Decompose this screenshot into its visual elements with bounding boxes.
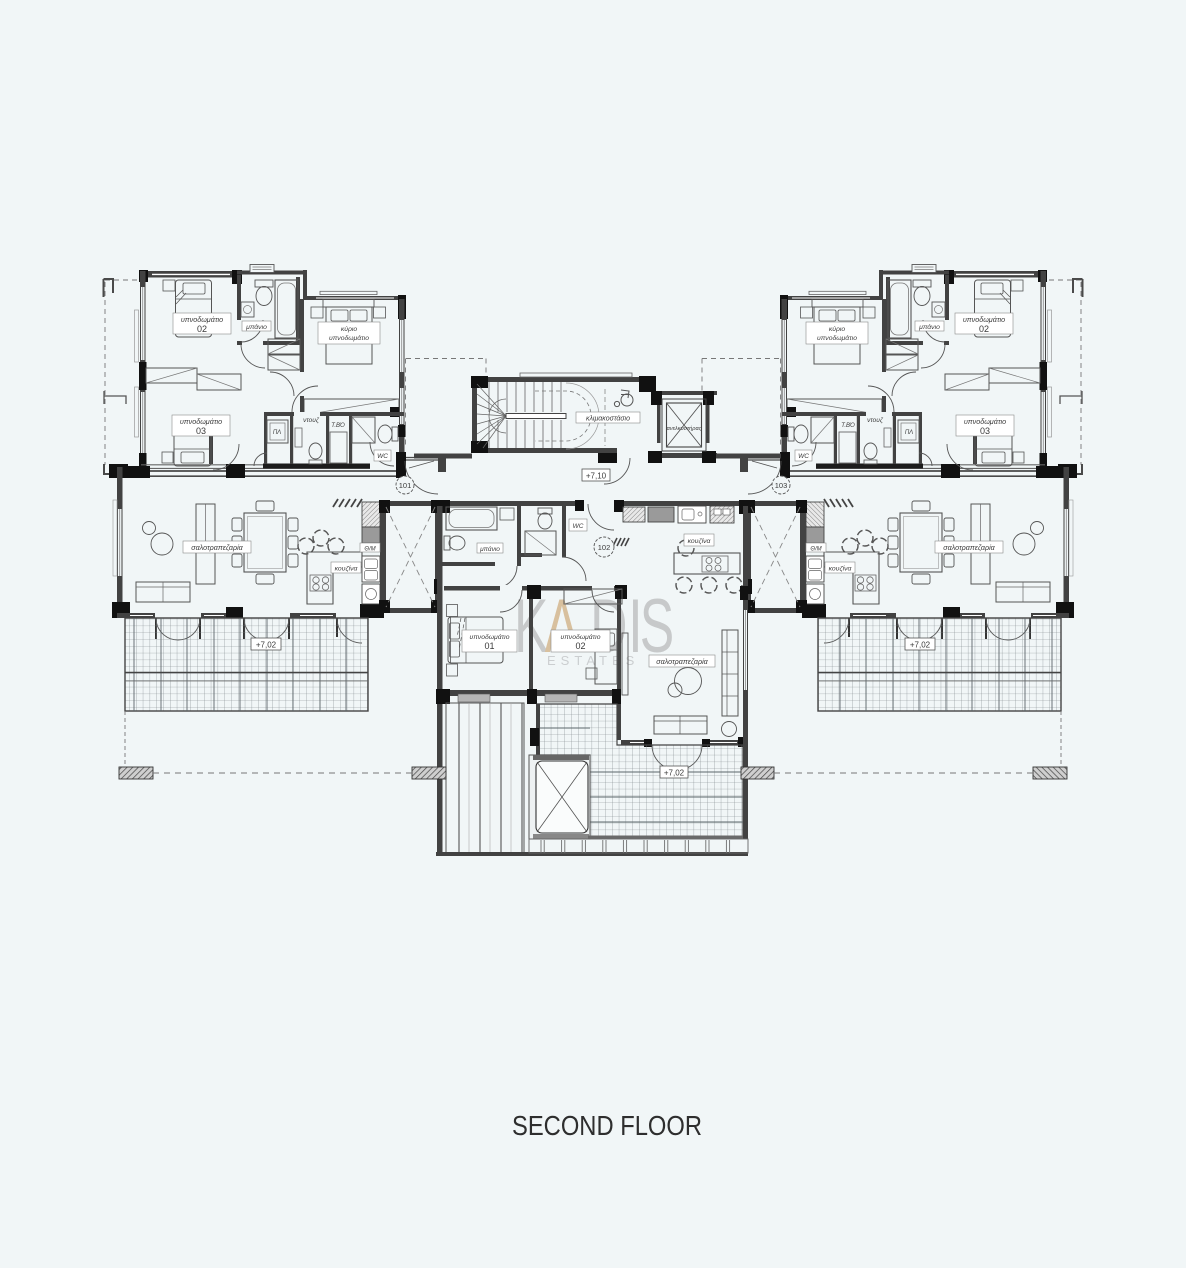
svg-text:ΠΛ: ΠΛ: [905, 430, 913, 436]
svg-text:κύριο: κύριο: [829, 325, 846, 333]
svg-text:υπνοδωμάτιο: υπνοδωμάτιο: [817, 334, 857, 342]
svg-text:υπνοδωμάτιο: υπνοδωμάτιο: [470, 633, 510, 641]
svg-text:υπνοδωμάτιο: υπνοδωμάτιο: [561, 633, 601, 641]
svg-text:01: 01: [484, 641, 494, 651]
svg-text:υπνοδωμάτιο: υπνοδωμάτιο: [964, 417, 1006, 426]
svg-text:+7,02: +7,02: [256, 641, 277, 650]
svg-text:υπνοδωμάτιο: υπνοδωμάτιο: [329, 334, 369, 342]
svg-text:σαλοτραπεζαρία: σαλοτραπεζαρία: [943, 543, 995, 552]
svg-text:υπνοδωμάτιο: υπνοδωμάτιο: [181, 315, 223, 324]
svg-text:Θ/Μ: Θ/Μ: [364, 547, 375, 553]
svg-text:ντουζ: ντουζ: [303, 417, 320, 424]
svg-text:101: 101: [399, 481, 412, 490]
svg-text:κλιμακοστάσιο: κλιμακοστάσιο: [586, 415, 630, 423]
svg-text:μπάνιο: μπάνιο: [918, 323, 940, 331]
svg-text:03: 03: [980, 426, 990, 436]
svg-text:σαλοτραπεζαρία: σαλοτραπεζαρία: [191, 543, 243, 552]
svg-text:σαλοτραπεζαρία: σαλοτραπεζαρία: [656, 657, 708, 666]
svg-text:Θ/Μ: Θ/Μ: [810, 547, 821, 553]
svg-text:μπάνιο: μπάνιο: [479, 545, 500, 553]
svg-text:02: 02: [575, 641, 585, 651]
svg-text:+7,02: +7,02: [664, 769, 685, 778]
svg-text:μπάνιο: μπάνιο: [245, 323, 267, 331]
svg-text:WC: WC: [573, 523, 584, 530]
svg-text:κουζίνα: κουζίνα: [688, 537, 712, 545]
svg-text:υπνοδωμάτιο: υπνοδωμάτιο: [180, 417, 222, 426]
svg-text:υπνοδωμάτιο: υπνοδωμάτιο: [963, 315, 1005, 324]
svg-text:ανελκυστήρας: ανελκυστήρας: [667, 425, 702, 432]
svg-text:Τ.ΒΌ: Τ.ΒΌ: [331, 423, 345, 429]
svg-text:κουζίνα: κουζίνα: [335, 565, 359, 573]
svg-text:02: 02: [979, 324, 989, 334]
svg-text:ESTATES: ESTATES: [547, 653, 639, 668]
svg-text:+7,10: +7,10: [586, 472, 607, 481]
svg-text:103: 103: [775, 481, 788, 490]
svg-text:102: 102: [598, 543, 611, 552]
svg-text:WC: WC: [798, 453, 809, 460]
svg-text:02: 02: [197, 324, 207, 334]
svg-text:ΠΛ: ΠΛ: [273, 430, 281, 436]
svg-text:κύριο: κύριο: [341, 325, 358, 333]
svg-text:Τ.ΒΌ: Τ.ΒΌ: [841, 423, 855, 429]
svg-text:SECOND FLOOR: SECOND FLOOR: [512, 1110, 702, 1141]
svg-text:03: 03: [196, 426, 206, 436]
svg-text:WC: WC: [377, 453, 388, 460]
svg-text:+7,02: +7,02: [910, 641, 931, 650]
svg-text:ντουζ: ντουζ: [867, 417, 884, 424]
svg-text:κουζίνα: κουζίνα: [829, 565, 853, 573]
